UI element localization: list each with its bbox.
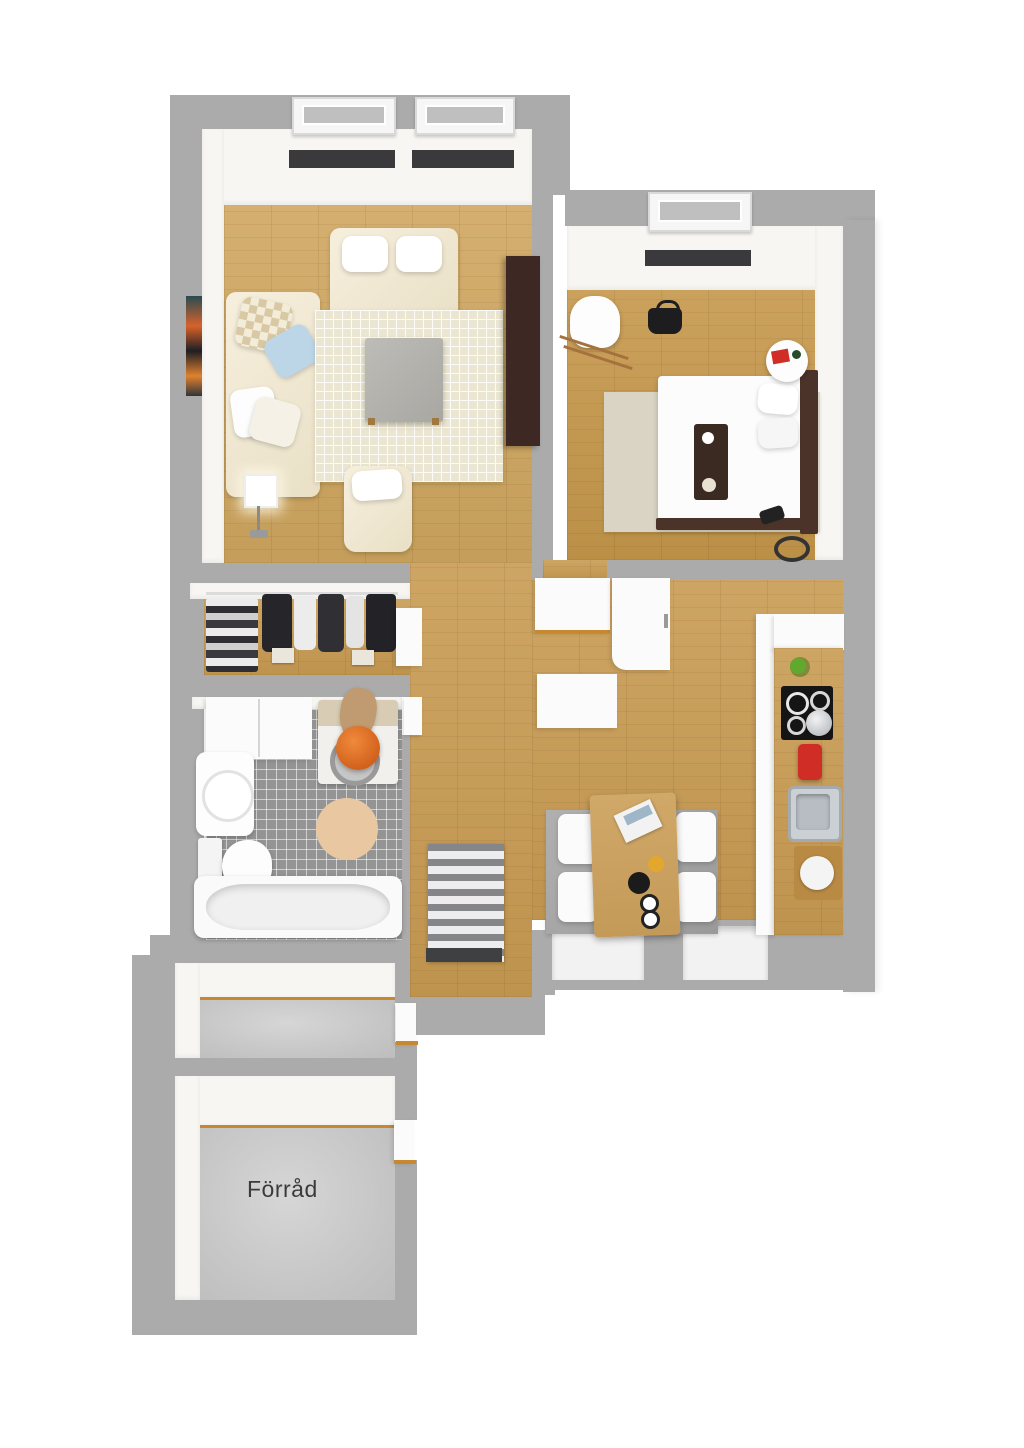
bathroom-cabinet-split xyxy=(258,699,260,757)
kitchen-upper-cabinet xyxy=(774,614,844,650)
floor-lamp-square xyxy=(244,474,278,508)
closet-end-panel xyxy=(396,608,422,666)
floor-plan: Förråd xyxy=(0,0,1024,1448)
storage-door-2 xyxy=(394,1120,414,1162)
yellow-bowl xyxy=(648,856,664,872)
pot-on-stove xyxy=(806,710,832,736)
cup-2 xyxy=(641,910,660,929)
hall-closet-baseboard xyxy=(535,630,610,633)
floor-storage-1 xyxy=(200,1000,395,1058)
face-storage2-west xyxy=(175,1076,200,1300)
floor-lamp-base xyxy=(250,530,268,538)
hall-closet-block-north xyxy=(535,578,610,632)
plate-on-board xyxy=(800,856,834,890)
wall-step-connector xyxy=(532,95,570,195)
bath-mat xyxy=(316,798,378,860)
tv-cabinet xyxy=(506,256,540,446)
bed-pillow-2 xyxy=(757,417,799,450)
hanging-clothes-dark-2 xyxy=(318,594,344,652)
armchair-cushion xyxy=(351,468,403,501)
floor-lamp-stem xyxy=(257,506,260,532)
wall-right-outer xyxy=(843,220,875,992)
handbag-handle xyxy=(656,300,680,317)
hanging-clothes-dark-3 xyxy=(366,594,396,652)
fridge xyxy=(612,578,670,670)
wall-closet-top xyxy=(170,563,410,583)
red-canister xyxy=(798,744,822,780)
threshold-storage-1 xyxy=(200,997,395,1000)
storage-door-1 xyxy=(396,1003,416,1043)
laundry-stool-orange xyxy=(336,726,380,770)
coffee-table-leg-2 xyxy=(432,418,439,425)
bed-pillow-1 xyxy=(757,382,799,415)
kitchen-sink-basin xyxy=(796,794,830,830)
cooktop-burner-3 xyxy=(787,716,806,735)
living-window-1-sill xyxy=(289,150,395,168)
wall-storage-bottom xyxy=(132,1300,417,1335)
living-window-1 xyxy=(292,97,396,135)
hanging-clothes-white-2 xyxy=(346,596,364,648)
cooktop-burner-2 xyxy=(810,691,830,711)
fridge-handle xyxy=(664,614,668,628)
bedside-bottle xyxy=(792,350,801,359)
storage-room-label: Förråd xyxy=(247,1176,318,1203)
face-storage2-north xyxy=(175,1076,395,1128)
coffee-table xyxy=(365,338,443,422)
sink-basin xyxy=(202,770,254,822)
wall-storage-divider xyxy=(155,1058,400,1076)
bedroom-floor-lamp-base xyxy=(774,536,810,562)
wall-storage-left xyxy=(132,955,175,1335)
wall-art xyxy=(186,296,202,396)
dining-chair-4 xyxy=(676,872,716,922)
loveseat-pillow-2 xyxy=(396,236,442,272)
coffee-table-leg-1 xyxy=(368,418,375,425)
hanging-clothes-white-1 xyxy=(294,596,316,650)
entry-door-mat xyxy=(426,948,502,962)
bedroom-window-sill xyxy=(645,250,751,266)
entry-striped-rug xyxy=(428,844,504,962)
cooktop-burner-1 xyxy=(786,692,809,715)
tray-plate xyxy=(702,478,716,492)
storage-door-2-sill xyxy=(394,1160,416,1164)
bedroom-window xyxy=(648,192,752,232)
wall-storage-right-lower xyxy=(395,1160,417,1300)
bed-headboard xyxy=(800,370,818,534)
living-window-2 xyxy=(415,97,515,135)
bathroom-door xyxy=(404,697,422,735)
tray-cup xyxy=(702,432,714,444)
face-storage1-west xyxy=(175,963,200,1058)
teapot xyxy=(628,872,650,894)
face-storage1-north xyxy=(175,963,395,1000)
dining-chair-3 xyxy=(676,812,716,862)
hanging-clothes-dark-1 xyxy=(262,594,292,652)
living-window-2-sill xyxy=(412,150,514,168)
wall-bedroom-bottom xyxy=(607,560,845,580)
kitchen-counter-front xyxy=(756,614,776,935)
floor-storage-2 xyxy=(200,1128,395,1300)
wall-storage-right-mid xyxy=(395,1042,417,1120)
closet-box-2 xyxy=(352,650,374,665)
floor-bedroom-doorway xyxy=(543,560,607,580)
threshold-storage-2 xyxy=(200,1125,395,1128)
bed-footboard xyxy=(656,518,806,530)
storage-door-1-sill xyxy=(396,1041,418,1045)
face-living-west xyxy=(202,129,224,563)
hall-closet-block-south xyxy=(537,674,617,728)
closet-box-1 xyxy=(272,648,294,663)
green-mug xyxy=(790,658,806,674)
bathtub-basin xyxy=(206,884,390,930)
loveseat-pillow-1 xyxy=(342,236,388,272)
wall-entry-bottom xyxy=(410,995,545,1035)
closet-shelf-stacks xyxy=(206,598,258,672)
